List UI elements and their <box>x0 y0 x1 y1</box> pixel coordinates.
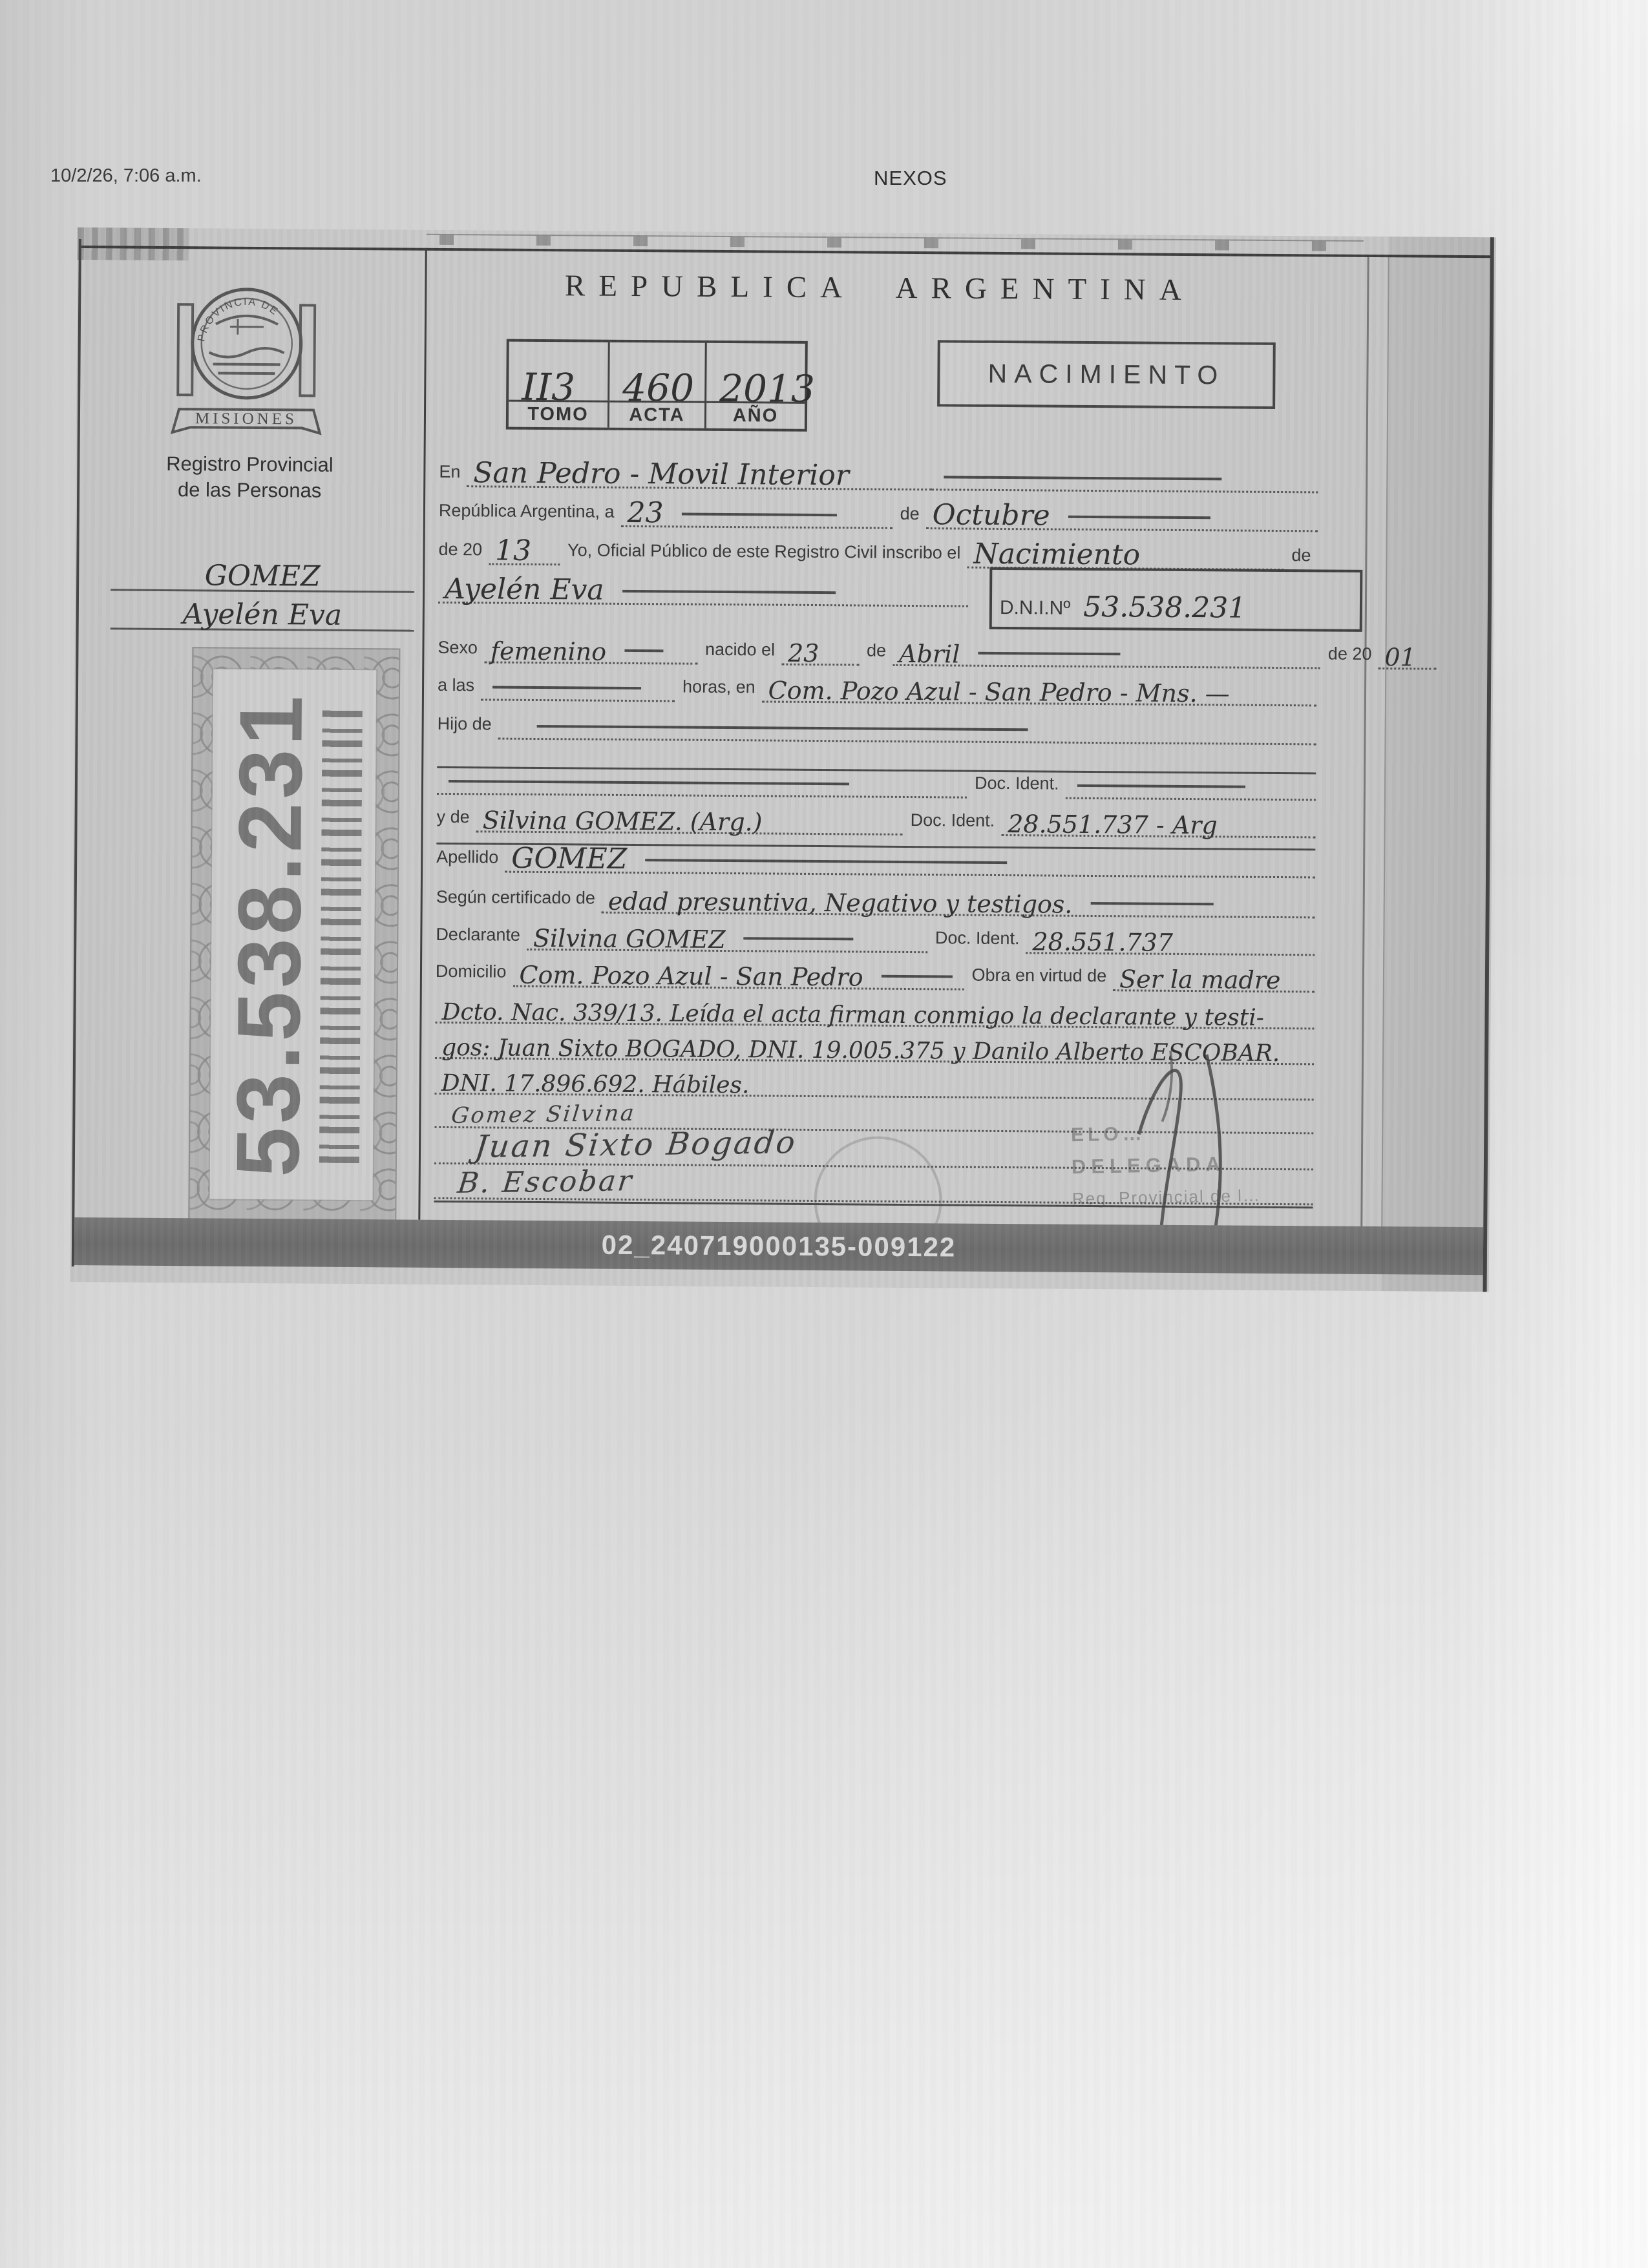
stamp-line-2: DELEGADA <box>1072 1150 1344 1179</box>
print-timestamp: 10/2/26, 7:06 a.m. <box>50 165 202 187</box>
dni-box-label: D.N.I.Nº <box>1000 597 1077 622</box>
label-apellido: Apellido <box>436 847 505 873</box>
emblem-cross-motif <box>230 319 264 335</box>
signature-witness-2: B. Escobar <box>450 1164 642 1200</box>
certificate-title: REPUBLICA ARGENTINA <box>440 268 1319 308</box>
handwritten-rule <box>882 975 953 978</box>
tomo-value-cell: II3 <box>509 342 610 401</box>
event-type-box: NACIMIENTO <box>937 340 1276 409</box>
birth-certificate-scan: PROVINCIA DE MISIONES Registro Provincia… <box>70 227 1496 1292</box>
official-stamp-text: ELO… DELEGADA Reg. Provincial de l… <box>1071 1119 1344 1209</box>
handwritten-rule <box>978 652 1120 656</box>
acta-header: ACTA <box>609 401 706 428</box>
emblem-banner-text: MISIONES <box>195 410 297 428</box>
document-code: 02_240719000135-009122 <box>602 1230 956 1263</box>
handwritten-rule <box>1090 902 1213 905</box>
margin-given-names: Ayelén Eva <box>176 598 348 632</box>
handwritten-rule <box>645 859 1007 864</box>
fold-gutter-shading <box>1382 236 1490 1292</box>
registry-office-name: Registro Provincial de las Personas <box>76 450 424 505</box>
field-row-name: Ayelén Eva <box>438 562 968 607</box>
misiones-emblem: PROVINCIA DE MISIONES <box>170 262 323 450</box>
emblem-landscape-lines <box>209 348 284 373</box>
handwritten-rule <box>744 937 854 940</box>
stamp-line-1: ELO… <box>1071 1119 1343 1146</box>
field-row-father: Hijo de <box>437 698 1316 745</box>
dni-box-value: 53.538.231 <box>1077 591 1252 625</box>
label-de2: de <box>1284 545 1317 571</box>
emblem-ribbon-right <box>300 305 315 395</box>
dni-number-vertical: 53.538.231 <box>224 691 316 1177</box>
handwritten-rule <box>682 513 837 517</box>
registry-line2: de las Personas <box>76 476 423 505</box>
guilloche-corner-fragment <box>78 227 189 260</box>
label-de-20: de 20 <box>438 540 489 565</box>
label-en: En <box>439 462 467 487</box>
book-record-table: II3 460 2013 TOMO ACTA AÑO <box>506 339 808 432</box>
label-doc-ident-mother: Doc. Ident. <box>903 810 1002 836</box>
dni-barcode-plate: 53.538.231 <box>210 669 377 1200</box>
emblem-arc-motif <box>216 315 278 324</box>
label-de-20-2: de 20 <box>1320 644 1379 669</box>
margin-surname: GOMEZ <box>198 559 327 593</box>
acta-value-cell: 460 <box>609 342 707 401</box>
dni-barcode-plate-inner: 53.538.231 <box>210 669 377 1200</box>
certificate-left-border <box>72 239 81 1266</box>
document-code-band: 02_240719000135-009122 <box>74 1217 1483 1275</box>
label-a-las: a las <box>438 675 481 700</box>
handwritten-rule <box>1068 516 1210 520</box>
site-header: NEXOS <box>874 167 947 190</box>
fold-line <box>1360 256 1369 1226</box>
margin-surname-row: GOMEZ <box>111 558 414 593</box>
registry-line1: Registro Provincial <box>76 450 423 479</box>
emblem-ribbon-left <box>178 304 193 395</box>
tomo-header: TOMO <box>509 400 609 428</box>
stamp-line-3: Reg. Provincial de l… <box>1072 1184 1344 1209</box>
handwritten-rule <box>1077 784 1245 788</box>
handwritten-rule <box>492 686 641 690</box>
handwritten-rule <box>944 476 1221 480</box>
anio-value-cell: 2013 <box>706 343 805 402</box>
dni-box: D.N.I.Nº 53.538.231 <box>989 567 1363 632</box>
handwritten-rule <box>537 725 1028 731</box>
left-column-divider <box>418 248 427 1220</box>
handwritten-rule <box>449 780 849 785</box>
anio-header: AÑO <box>706 401 805 429</box>
handwritten-rule <box>622 590 836 594</box>
label-hijo-de: Hijo de <box>437 714 498 740</box>
value-birth-year-suffix: 01 <box>1378 643 1422 671</box>
handwritten-rule <box>624 649 663 652</box>
value-surname: GOMEZ <box>505 842 633 876</box>
value-event: Nacimiento <box>967 538 1146 572</box>
label-horas-en: horas, en <box>675 677 762 702</box>
margin-given-names-row: Ayelén Eva <box>111 597 414 631</box>
label-y-de: y de <box>436 807 476 832</box>
dni-barcode <box>319 707 363 1163</box>
label-de: de <box>892 504 925 529</box>
value-given-names: Ayelén Eva <box>438 572 611 607</box>
scanned-page: 10/2/26, 7:06 a.m. NEXOS PROVINCIA DE MI… <box>0 0 1648 2268</box>
